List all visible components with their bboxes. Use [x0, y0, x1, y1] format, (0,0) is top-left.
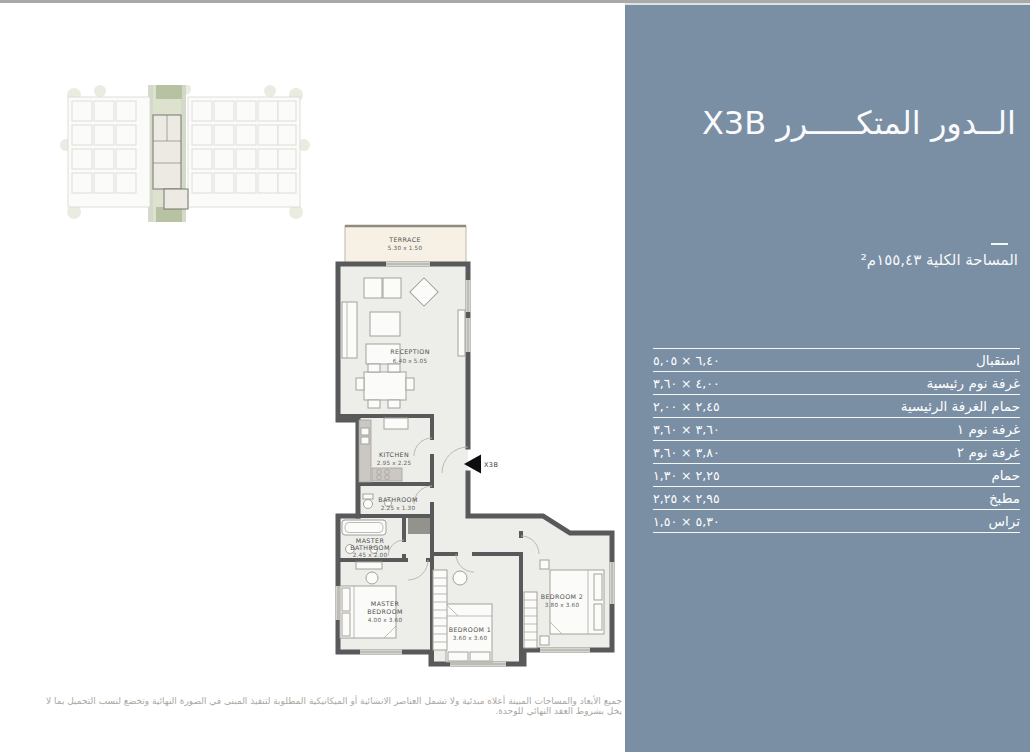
room-dimensions: ٥,٣٠ × ١,٥٠: [653, 514, 720, 529]
bedroom2-label: BEDROOM 2: [541, 593, 583, 600]
total-area-text: المساحة الكلية ١٥٥,٤٣م²: [633, 251, 1018, 269]
disclaimer-text: جميع الأبعاد والمساحات المبينة أعلاه مبد…: [40, 696, 622, 716]
room-dimensions: ٢,٤٥ × ٢,٠٠: [653, 399, 720, 414]
room-name: غرفة نوم ١: [957, 421, 1020, 437]
bedroom2-dims: 3.80 x 3.60: [545, 602, 580, 608]
unit-marker-label: X3B: [484, 461, 498, 469]
site-plan-green-top: [156, 85, 182, 99]
bedroom1-label: BEDROOM 1: [449, 626, 491, 633]
master-bathroom-label-1: MASTER: [356, 537, 385, 544]
room-name: مطبخ: [989, 490, 1020, 506]
room-name: تراس: [989, 513, 1020, 529]
info-panel: الــدور المتكـــــرر X3B المساحة الكلية …: [625, 3, 1030, 752]
room-name: استقبال: [976, 352, 1020, 368]
room-dimensions: ٤,٠٠ × ٣,٦٠: [653, 376, 720, 391]
kitchen-label: KITCHEN: [379, 451, 409, 458]
master-bathroom-label-2: BATHROOM: [350, 544, 390, 551]
room-dimensions: ٣,٨٠ × ٣,٦٠: [653, 445, 720, 460]
reception-dims: 6.40 x 5.05: [393, 358, 428, 364]
dimensions-table: استقبال ٦,٤٠ × ٥,٠٥ غرفة نوم رئيسية ٤,٠٠…: [653, 348, 1020, 533]
floor-plan: X3B TERRACE 5.30 x 1.50 RECEPTION 6.40 x…: [328, 218, 628, 670]
master-bathroom-dims: 2.45 x 2.00: [353, 552, 388, 558]
room-dimensions: ٢,٩٥ × ٢,٢٥: [653, 491, 720, 506]
kitchen-dims: 2.95 x 2.25: [377, 460, 412, 466]
room-dimensions: ٦,٤٠ × ٥,٠٥: [653, 353, 720, 368]
bathroom-label: BATHROOM: [378, 496, 418, 503]
bedroom1-dims: 3.60 x 3.60: [453, 635, 488, 641]
site-plan-thumbnail: [60, 85, 310, 222]
page-title: الــدور المتكـــــرر X3B: [633, 102, 1016, 145]
room-name: حمام: [991, 467, 1020, 483]
room-name: غرفة نوم ٢: [957, 444, 1020, 460]
site-plan-left-building: [68, 97, 150, 207]
room-name: حمام الغرفة الرئيسية: [901, 398, 1020, 414]
table-row: غرفة نوم رئيسية ٤,٠٠ × ٣,٦٠: [653, 371, 1020, 394]
table-row: حمام الغرفة الرئيسية ٢,٤٥ × ٢,٠٠: [653, 394, 1020, 417]
table-row: مطبخ ٢,٩٥ × ٢,٢٥: [653, 486, 1020, 509]
reception-label: RECEPTION: [390, 348, 430, 355]
bathroom-dims: 2.25 x 1.30: [381, 505, 416, 511]
master-bedroom-dims: 4.00 x 3.60: [368, 617, 403, 623]
room-dimensions: ٢,٢٥ × ١,٣٠: [653, 468, 720, 483]
master-bedroom-label-1: MASTER: [371, 600, 400, 607]
master-bedroom-label-2: BEDROOM: [367, 608, 403, 615]
room-dimensions: ٣,٦٠ × ٣,٦٠: [653, 422, 720, 437]
room-name: غرفة نوم رئيسية: [926, 375, 1020, 391]
shaft: [408, 518, 430, 534]
terrace-label: TERRACE: [388, 236, 421, 243]
brochure-page: X3B TERRACE 5.30 x 1.50 RECEPTION 6.40 x…: [0, 0, 1030, 752]
area-dash-divider: [991, 243, 1008, 245]
table-row: استقبال ٦,٤٠ × ٥,٠٥: [653, 348, 1020, 371]
table-row: حمام ٢,٢٥ × ١,٣٠: [653, 463, 1020, 486]
table-row: غرفة نوم ١ ٣,٦٠ × ٣,٦٠: [653, 417, 1020, 440]
table-row: غرفة نوم ٢ ٣,٨٠ × ٣,٦٠: [653, 440, 1020, 463]
site-plan-right-building: [188, 97, 300, 207]
table-row: تراس ٥,٣٠ × ١,٥٠: [653, 509, 1020, 533]
terrace-dims: 5.30 x 1.50: [388, 245, 423, 251]
